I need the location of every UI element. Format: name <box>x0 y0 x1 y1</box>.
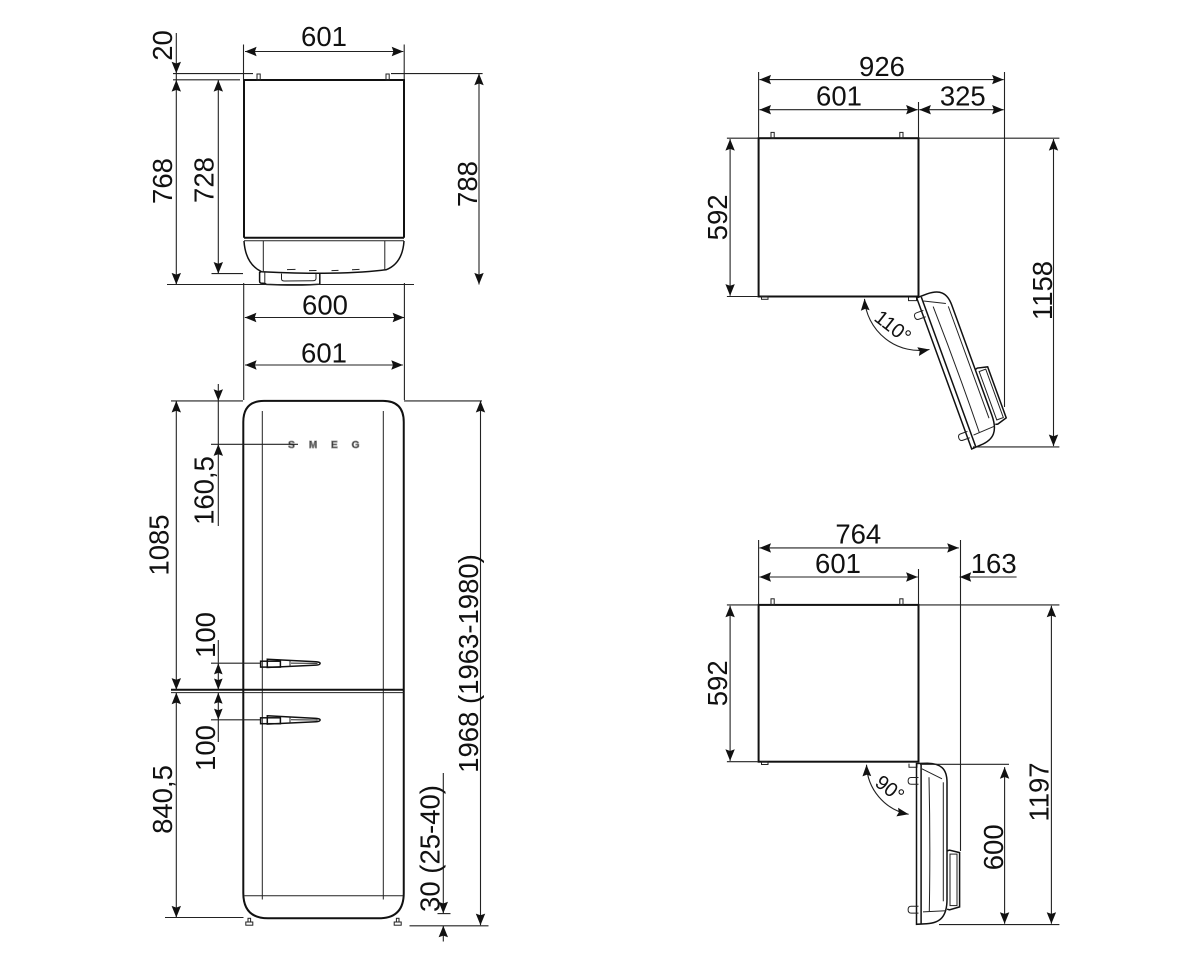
svg-text:1158: 1158 <box>1027 261 1058 320</box>
svg-text:20: 20 <box>147 30 178 61</box>
svg-text:160,5: 160,5 <box>189 456 220 525</box>
svg-text:G: G <box>352 440 360 451</box>
svg-text:90°: 90° <box>871 771 908 807</box>
svg-text:S: S <box>288 440 295 451</box>
svg-text:30 (25-40): 30 (25-40) <box>415 785 446 912</box>
svg-text:1197: 1197 <box>1024 762 1055 821</box>
svg-text:100: 100 <box>190 725 221 771</box>
svg-text:601: 601 <box>815 548 861 579</box>
svg-text:592: 592 <box>702 194 733 240</box>
svg-text:100: 100 <box>190 612 221 658</box>
svg-text:728: 728 <box>189 157 220 203</box>
svg-text:601: 601 <box>301 338 347 369</box>
svg-text:E: E <box>331 440 338 451</box>
svg-text:601: 601 <box>301 21 347 52</box>
svg-text:926: 926 <box>859 51 905 82</box>
svg-text:600: 600 <box>302 290 348 321</box>
svg-text:788: 788 <box>452 161 483 207</box>
svg-text:163: 163 <box>971 548 1017 579</box>
svg-text:110°: 110° <box>870 306 915 348</box>
svg-text:1968 (1963-1980): 1968 (1963-1980) <box>453 554 484 773</box>
svg-text:768: 768 <box>147 158 178 204</box>
svg-text:M: M <box>309 440 317 451</box>
svg-text:600: 600 <box>978 824 1009 870</box>
svg-text:325: 325 <box>940 81 986 112</box>
svg-text:1085: 1085 <box>144 514 175 575</box>
svg-text:601: 601 <box>816 81 862 112</box>
svg-text:592: 592 <box>702 660 733 706</box>
svg-text:840,5: 840,5 <box>147 765 178 834</box>
svg-text:764: 764 <box>835 519 881 550</box>
